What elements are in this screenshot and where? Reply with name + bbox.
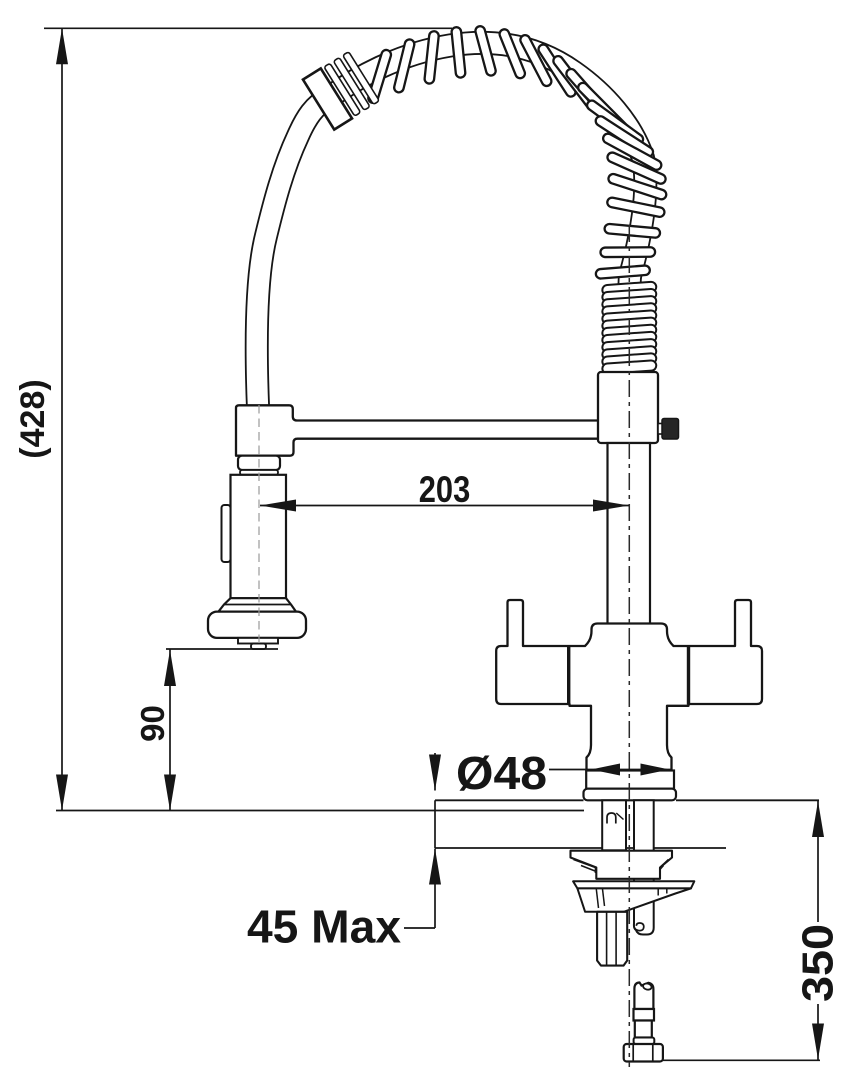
svg-text:350: 350 (794, 924, 843, 1002)
svg-text:90: 90 (134, 705, 171, 742)
svg-text:45 Max: 45 Max (247, 901, 401, 953)
svg-text:Ø48: Ø48 (456, 747, 547, 799)
svg-text:203: 203 (419, 469, 471, 510)
svg-text:(428): (428) (14, 379, 52, 458)
